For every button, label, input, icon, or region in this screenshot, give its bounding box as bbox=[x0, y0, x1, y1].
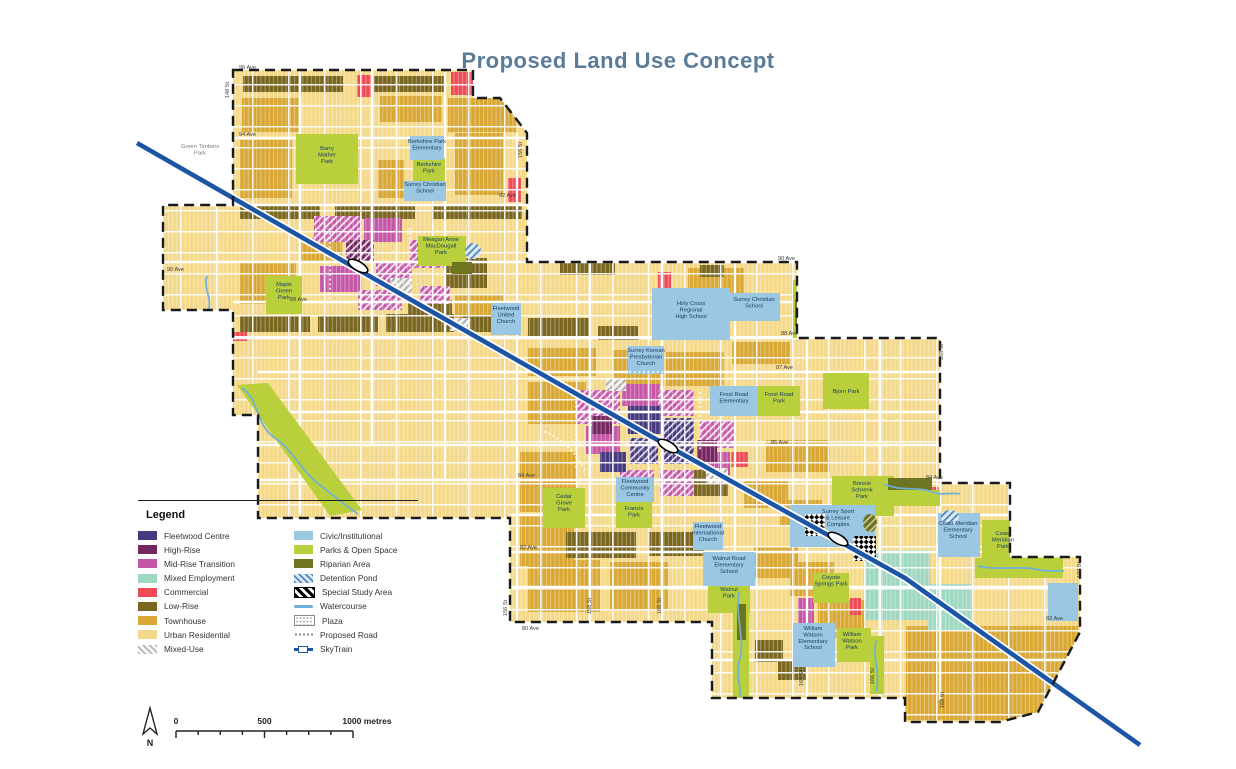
legend-label: Proposed Road bbox=[320, 630, 378, 640]
avenue-label: 88 Ave bbox=[290, 297, 307, 303]
feature-label: CedarGrovePark bbox=[556, 494, 572, 513]
legend-swatch-civic-institutional bbox=[294, 531, 313, 540]
legend-label: Parks & Open Space bbox=[320, 545, 397, 555]
legend-item: Watercourse bbox=[294, 602, 397, 611]
legend-label: SkyTrain bbox=[320, 644, 352, 654]
svg-text:N: N bbox=[147, 738, 154, 748]
legend-swatch-special-study-area bbox=[294, 587, 315, 598]
legend-label: Commercial bbox=[164, 587, 208, 597]
legend-item: Civic/Institutional bbox=[294, 531, 397, 540]
scale-label: 0 bbox=[174, 716, 179, 726]
avenue-label: 84 Ave bbox=[926, 475, 943, 481]
page: Proposed Land Use Concept bbox=[0, 0, 1236, 769]
legend-swatch-mixed-employment bbox=[138, 574, 157, 583]
legend-swatch-parks-open-space bbox=[294, 545, 313, 554]
legend-column: Fleetwood CentreHigh-RiseMid-Rise Transi… bbox=[138, 531, 286, 654]
legend-swatch-riparian-area bbox=[294, 559, 313, 568]
legend-rule bbox=[138, 500, 418, 501]
land-use-block-ra bbox=[452, 262, 472, 274]
legend-swatch-plaza bbox=[294, 615, 315, 626]
legend-item: Riparian Area bbox=[294, 559, 397, 568]
legend-label: Civic/Institutional bbox=[320, 531, 382, 541]
avenue-label: 90 Ave bbox=[167, 267, 184, 273]
street-label: 168 St bbox=[939, 343, 945, 360]
legend-swatch-low-rise bbox=[138, 602, 157, 611]
legend-label: High-Rise bbox=[164, 545, 200, 555]
scale-label: 1000 metres bbox=[342, 716, 391, 726]
street-label: 168 St bbox=[940, 691, 946, 708]
detention-pond bbox=[465, 243, 481, 259]
avenue-label: 87 Ave bbox=[776, 365, 793, 371]
legend-swatch-watercourse bbox=[294, 605, 313, 608]
street-label: 172 St bbox=[1077, 561, 1083, 578]
legend-item: Fleetwood Centre bbox=[138, 531, 286, 540]
legend-item: Parks & Open Space bbox=[294, 545, 397, 554]
avenue-label: 88 Ave bbox=[781, 331, 798, 337]
legend-label: Fleetwood Centre bbox=[164, 531, 230, 541]
street-label: 158 St bbox=[587, 597, 593, 614]
legend-item: High-Rise bbox=[138, 545, 286, 554]
legend-label: Low-Rise bbox=[164, 601, 199, 611]
avenue-label: 96 Ave bbox=[239, 65, 256, 71]
legend-swatch-commercial bbox=[138, 588, 157, 597]
legend-label: Urban Residential bbox=[164, 630, 230, 640]
legend-item: Urban Residential bbox=[138, 630, 286, 639]
legend-item: SkyTrain bbox=[294, 645, 397, 654]
legend-label: Detention Pond bbox=[320, 573, 377, 583]
avenue-label: 80 Ave bbox=[522, 626, 539, 632]
legend-swatch-mixed-use bbox=[138, 645, 157, 654]
legend-label: Mixed-Use bbox=[164, 644, 204, 654]
legend-label: Mid-Rise Transition bbox=[164, 559, 235, 569]
legend-item: Mixed Employment bbox=[138, 574, 286, 583]
legend-item: Townhouse bbox=[138, 616, 286, 625]
legend-label: Mixed Employment bbox=[164, 573, 235, 583]
legend-swatch-fleetwood-centre bbox=[138, 531, 157, 540]
legend-item: Mixed-Use bbox=[138, 645, 286, 654]
feature-label: Berkshire ParkElementary bbox=[408, 139, 446, 151]
legend-label: Plaza bbox=[322, 616, 343, 626]
legend-item: Commercial bbox=[138, 588, 286, 597]
legend-label: Townhouse bbox=[164, 616, 206, 626]
legend-item: Detention Pond bbox=[294, 574, 397, 583]
street-label: 156 St bbox=[503, 599, 509, 616]
feature-label: Holy CrossRegionalHigh School bbox=[675, 301, 706, 320]
legend: Legend Fleetwood CentreHigh-RiseMid-Rise… bbox=[138, 500, 418, 654]
legend-swatch-skytrain bbox=[294, 646, 313, 653]
legend-swatch-mid-rise-transition bbox=[138, 559, 157, 568]
feature-label: Bjorn Park bbox=[832, 389, 859, 395]
avenue-label: 85 Ave bbox=[771, 440, 788, 446]
legend-swatch-townhouse bbox=[138, 616, 157, 625]
legend-swatch-detention-pond bbox=[294, 574, 313, 583]
avenue-label: 90 Ave bbox=[778, 256, 795, 262]
legend-swatch-proposed-road bbox=[294, 633, 313, 636]
feature-label: Frost RoadElementary bbox=[719, 392, 748, 404]
legend-item: Plaza bbox=[294, 616, 397, 625]
avenue-label: 82 Ave bbox=[1046, 616, 1063, 622]
scale-label: 500 bbox=[257, 716, 271, 726]
riparian-pond bbox=[863, 514, 877, 532]
watercourse bbox=[798, 282, 801, 332]
legend-item: Proposed Road bbox=[294, 630, 397, 639]
avenue-label: 92 Ave bbox=[499, 193, 516, 199]
legend-label: Special Study Area bbox=[322, 587, 392, 597]
street-label: 166 St bbox=[870, 667, 876, 684]
avenue-label: 94 Ave bbox=[239, 132, 256, 138]
legend-item: Low-Rise bbox=[138, 602, 286, 611]
feature-label: Green TimbersPark bbox=[181, 144, 219, 156]
avenue-label: 84 Ave bbox=[518, 473, 535, 479]
street-label: 156 St bbox=[518, 141, 524, 158]
legend-column: Civic/InstitutionalParks & Open SpaceRip… bbox=[294, 531, 397, 654]
legend-swatch-high-rise bbox=[138, 545, 157, 554]
legend-item: Mid-Rise Transition bbox=[138, 559, 286, 568]
legend-label: Riparian Area bbox=[320, 559, 370, 569]
north-arrow-icon bbox=[143, 708, 157, 734]
street-label: 148 St bbox=[225, 81, 231, 98]
feature-label: MapleGreenPark bbox=[276, 282, 292, 301]
scale-bar: N 05001000 metres bbox=[136, 700, 436, 760]
legend-heading: Legend bbox=[146, 509, 418, 521]
legend-label: Watercourse bbox=[320, 601, 367, 611]
legend-item: Special Study Area bbox=[294, 588, 397, 597]
street-label: 164 St bbox=[799, 669, 805, 686]
avenue-label: 82 Ave bbox=[520, 545, 537, 551]
street-label: 160 St bbox=[657, 597, 663, 614]
legend-swatch-urban-residential bbox=[138, 630, 157, 639]
